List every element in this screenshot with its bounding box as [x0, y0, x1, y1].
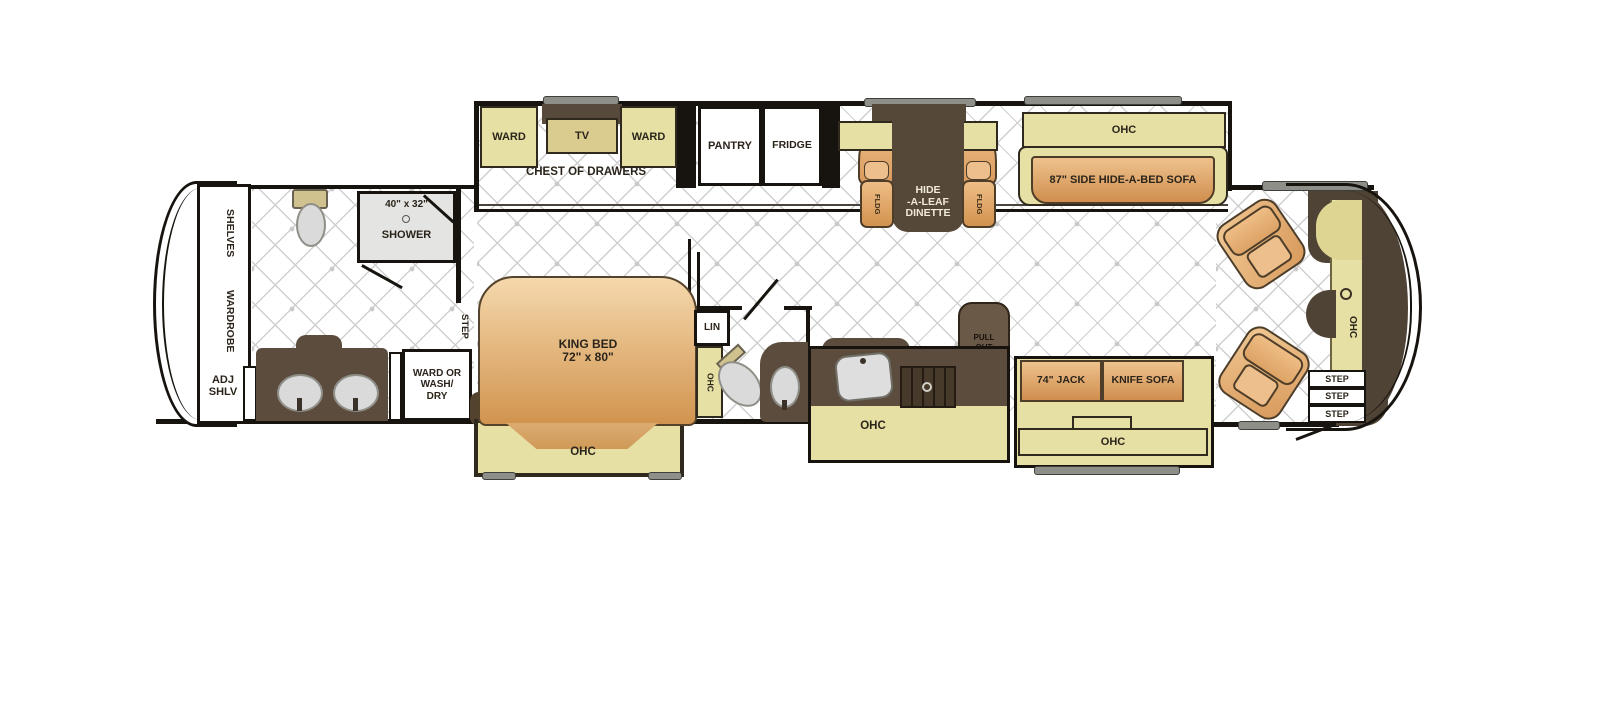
shower-drain [402, 215, 410, 223]
dinette-table-line1: HIDE [906, 185, 951, 197]
king-bed-line1: KING BED [518, 338, 658, 351]
rear-toilet-bowl [296, 203, 326, 247]
vanity-cabinet-left [243, 366, 257, 421]
wash-dry-line3: DRY [413, 391, 461, 402]
wall-bath-bedroom [456, 189, 461, 303]
sofa-ohc-label: OHC [1112, 124, 1136, 136]
jack-knife-cushion-right: KNIFE SOFA [1102, 360, 1184, 402]
vanity-faucet-right [353, 398, 358, 411]
chest-of-drawers-label: CHEST OF DRAWERS [498, 166, 674, 179]
linen-cabinet: LIN [694, 310, 730, 346]
bedroom-step-label: STEP [452, 300, 469, 352]
wash-dry-line1: WARD OR [413, 368, 461, 379]
range-knob [922, 382, 932, 392]
king-bed-label: KING BED 72" x 80" [518, 338, 658, 365]
entry-topper [1238, 421, 1280, 430]
fridge: FRIDGE [762, 106, 822, 186]
dinette-folding-chair-right: FLDG [962, 180, 996, 228]
hide-a-bed-sofa: 87" SIDE HIDE-A-BED SOFA [1031, 156, 1215, 204]
midbath-ohc-label: OHC [705, 373, 715, 392]
vanity-cabinet-right [389, 352, 402, 421]
ward-cabinet-right: WARD [620, 106, 677, 168]
pull-out-line1: PULL [974, 333, 995, 343]
pantry-label: PANTRY [708, 140, 752, 152]
fldg-label-left: FLDG [873, 194, 881, 214]
shelves-label: SHELVES [213, 193, 235, 273]
vanity-faucet-left [297, 398, 302, 411]
jack-knife-ohc: OHC [1018, 428, 1208, 456]
jack-label: 74" JACK [1037, 375, 1085, 387]
lin-label: LIN [704, 322, 720, 333]
tv-cabinet: TV [546, 118, 618, 154]
bed-slide-tab-right [648, 472, 682, 480]
sofa-slide-bottom-bar [1034, 466, 1180, 475]
ward-cabinet-left: WARD [480, 106, 538, 168]
jack-knife-cushion-left: 74" JACK [1020, 360, 1102, 402]
fldg-label-right: FLDG [975, 194, 983, 214]
shower-size-label: 40" x 32" [359, 199, 454, 210]
wardrobe-label: WARDROBE [213, 272, 235, 370]
wall-divider-chunk1 [676, 104, 696, 188]
wash-dry-line2: WASH/ [413, 379, 461, 390]
knife-label: KNIFE SOFA [1111, 375, 1174, 387]
ward-wash-dry-cabinet: WARD OR WASH/ DRY [402, 349, 472, 421]
bed-ohc-label: OHC [528, 446, 638, 459]
dinette-table: HIDE -A-LEAF DINETTE [892, 110, 964, 232]
tv-label: TV [575, 130, 589, 142]
rv-floorplan: SHELVES WARDROBE ADJ SHLV 40" x 32" SHOW… [0, 0, 1600, 703]
dinette-table-line3: DINETTE [906, 208, 951, 220]
wall-slide-right [1228, 101, 1232, 191]
midbath-faucet [782, 400, 787, 410]
ward-left-label: WARD [492, 131, 526, 143]
fridge-label: FRIDGE [772, 140, 812, 152]
dinette-folding-chair-left: FLDG [860, 180, 894, 228]
shower-label: SHOWER [359, 229, 454, 241]
kitchen-ohc-label: OHC [828, 420, 918, 433]
sofa-ohc: OHC [1022, 112, 1226, 148]
slide-topper-sofa [1024, 96, 1182, 105]
pantry-cabinet: PANTRY [698, 106, 762, 186]
kitchen-faucet [860, 358, 866, 364]
wall-slide-left [474, 101, 479, 212]
adj-shlv-label: ADJ SHLV [200, 374, 246, 399]
jack-knife-ohc-label: OHC [1101, 436, 1125, 448]
bed-slide-tab-left [482, 472, 516, 480]
sofa-label: 87" SIDE HIDE-A-BED SOFA [1049, 174, 1196, 186]
slide-seam-wall [478, 209, 1228, 212]
ward-right-label: WARD [632, 131, 666, 143]
king-bed-line2: 72" x 80" [518, 351, 658, 364]
